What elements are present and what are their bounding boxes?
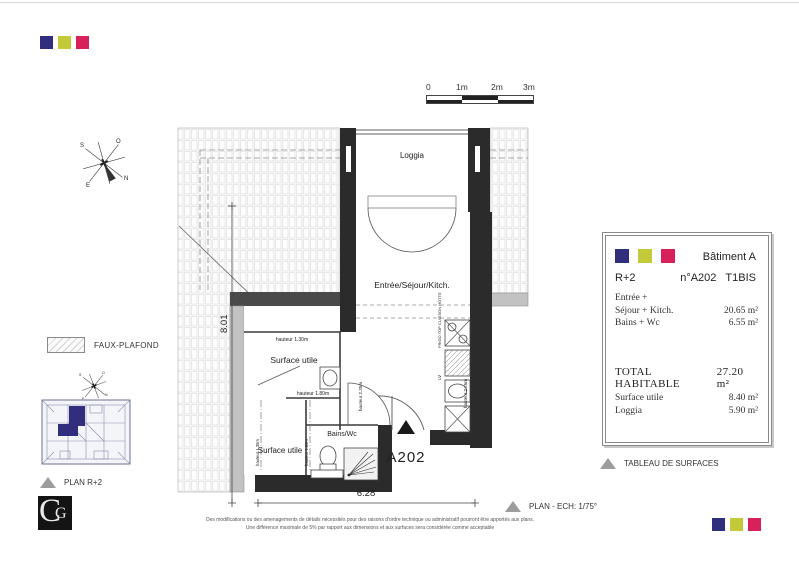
svg-text:S: S [80, 143, 84, 149]
svg-text:N: N [124, 176, 128, 182]
extra-area-row: Loggia 5.90 m² [615, 405, 758, 418]
extra-area-rows: Surface utile 8.40 m² Loggia 5.90 m² [615, 392, 758, 417]
extra-area-value: 5.90 m² [729, 405, 758, 418]
area-row: Bains + Wc 6.55 m² [615, 317, 758, 330]
scale-bar: 0 1m 2m 3m [426, 82, 534, 104]
brand-square-navy [712, 518, 725, 531]
scale-label-1m: 1m [456, 82, 468, 92]
compass-rose-icon: O N S E [68, 125, 140, 197]
triangle-icon [600, 458, 616, 469]
unit-type-label: T1BIS [725, 272, 756, 284]
window-slot-left [346, 146, 351, 172]
extra-area-row: Surface utile 8.40 m² [615, 392, 758, 405]
brand-square-green [58, 36, 71, 49]
area-row-label: Bains + Wc [615, 317, 660, 330]
scale-label-2m: 2m [491, 82, 503, 92]
building-label: Bâtiment A [703, 251, 756, 263]
cg-logo: C G [38, 496, 72, 530]
brand-square-navy [40, 36, 53, 49]
brand-squares-bottom [712, 518, 761, 531]
triangle-icon [40, 477, 56, 488]
brand-square-green [730, 518, 743, 531]
disclaimer-line-2: Une différence maximale de 5% par rappor… [152, 525, 588, 533]
legend-faux-plafond-label: FAUX-PLAFOND [94, 341, 159, 350]
extra-area-label: Loggia [615, 405, 642, 418]
key-plan-caption-label: PLAN R+2 [64, 478, 102, 487]
room-label-bains: Bains/Wc [327, 431, 357, 438]
room-label-surface-utile-upper: Surface utile [270, 355, 318, 365]
brand-squares-top [40, 36, 89, 49]
dim-width-label: 6.28 [357, 488, 376, 499]
extra-area-value: 8.40 m² [729, 392, 758, 405]
room-label-surface-utile-lower: Surface utile [258, 446, 303, 455]
hatch-swatch-icon [47, 337, 85, 353]
floor-plan-drawing: FRIGO TOP CUISSON HOTTE LV [170, 118, 570, 518]
area-row-label: Séjour + Kitch. [615, 305, 673, 318]
total-habitable-label: TOTAL HABITABLE [615, 366, 717, 390]
height-label-left-wall: hauteur 2.35m [358, 382, 363, 411]
unit-number-type: n°A202 T1BIS [680, 272, 756, 284]
unit-number-label: n°A202 [680, 272, 716, 284]
surface-table-panel-inner: Bâtiment A R+2 n°A202 T1BIS Entrée + Séj… [605, 235, 769, 443]
height-label-130: hauteur 1.30m [276, 337, 308, 343]
area-row-label: Entrée + [615, 292, 648, 305]
disclaimer-line-1: Des modifications ou des amenagements de… [152, 517, 588, 525]
height-label-right-wall: hauteur 2.25m [463, 379, 468, 408]
svg-text:E: E [86, 183, 90, 189]
panel-square-pink [661, 249, 675, 263]
loggia-railing [356, 130, 468, 134]
svg-text:S: S [79, 373, 82, 377]
dim-height-label: 8.01 [219, 315, 230, 334]
kitchen-lv-label: LV [437, 375, 442, 380]
room-label-loggia: Loggia [400, 151, 425, 160]
scale-label-0: 0 [426, 82, 431, 92]
logo-letter-g: G [55, 505, 67, 523]
area-row-value: 6.55 m² [729, 317, 758, 330]
floor-plan-sheet: 0 1m 2m 3m O N S E O N S E [0, 0, 799, 565]
height-label-135: hauteur 1.35m [255, 438, 260, 466]
brand-square-pink [76, 36, 89, 49]
total-habitable-value: 27.20 m² [717, 366, 758, 390]
svg-text:O: O [116, 139, 121, 145]
height-label-180-side: hauteur 1.80m [304, 438, 309, 466]
triangle-icon [505, 501, 521, 512]
room-label-living: Entrée/Séjour/Kitch. [374, 280, 450, 290]
kitchen-frigo-label: FRIGO TOP CUISSON HOTTE [437, 292, 442, 348]
shower [344, 448, 378, 480]
plan-scale-caption-label: PLAN - ECH: 1/75° [529, 502, 597, 511]
key-plan [38, 397, 134, 469]
total-habitable-row: TOTAL HABITABLE 27.20 m² [615, 366, 758, 390]
height-label-180-top: hauteur 1.80m [297, 391, 329, 397]
scale-label-3m: 3m [523, 82, 535, 92]
washbasin [320, 367, 340, 389]
brand-square-pink [748, 518, 761, 531]
area-rows: Entrée + Séjour + Kitch. 20.65 m² Bains … [615, 292, 758, 330]
plan-scale-caption: PLAN - ECH: 1/75° [505, 501, 597, 512]
key-plan-caption: PLAN R+2 [40, 477, 102, 488]
legend-faux-plafond: FAUX-PLAFOND [47, 337, 159, 353]
terrace-hatch-right [490, 128, 528, 293]
scale-bar-labels: 0 1m 2m 3m [426, 82, 534, 93]
area-row-value: 20.65 m² [724, 305, 758, 318]
area-row: Entrée + [615, 292, 758, 305]
panel-square-navy [615, 249, 629, 263]
party-wall-top [230, 292, 340, 306]
disclaimer-text: Des modifications ou des amenagements de… [152, 517, 588, 533]
top-divider [0, 2, 799, 3]
area-row: Séjour + Kitch. 20.65 m² [615, 305, 758, 318]
tableau-caption-label: TABLEAU DE SURFACES [624, 459, 719, 468]
window-slot-right [475, 146, 480, 172]
extra-area-label: Surface utile [615, 392, 663, 405]
unit-marker-label: A202 [386, 449, 425, 466]
panel-brand-squares [615, 249, 675, 263]
kitchen-fixtures [445, 320, 470, 432]
floor-label: R+2 [615, 272, 636, 284]
tableau-caption: TABLEAU DE SURFACES [600, 458, 719, 469]
party-wall-right [490, 293, 528, 306]
svg-text:O: O [102, 371, 105, 375]
panel-square-green [638, 249, 652, 263]
surface-table-panel: Bâtiment A R+2 n°A202 T1BIS Entrée + Séj… [602, 232, 772, 446]
scale-bar-graphic [426, 95, 534, 104]
